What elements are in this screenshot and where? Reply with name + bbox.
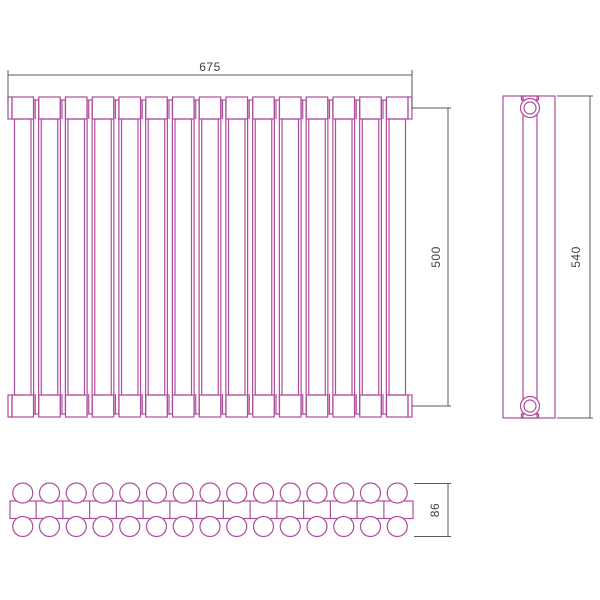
tube-body [309, 119, 326, 395]
section-head-bottom [226, 395, 248, 417]
section-head-top [306, 97, 328, 119]
tube-section-front-row [361, 483, 381, 503]
side-profile [503, 96, 555, 418]
tube-section-front-row [280, 483, 300, 503]
tube-section-back-row [120, 517, 140, 537]
tube-section-back-row [93, 517, 113, 537]
section-head-bottom [66, 395, 88, 417]
tube-section-back-row [254, 517, 274, 537]
collector-band [10, 501, 413, 519]
tube-section-back-row [147, 517, 167, 537]
section-head-top [66, 97, 88, 119]
tube-section-front-row [200, 483, 220, 503]
tube-section-back-row [200, 517, 220, 537]
tube-body [362, 119, 379, 395]
section-head-top [226, 97, 248, 119]
dimension-axis-height-label: 500 [429, 246, 443, 268]
drawing-svg: 675 500 540 86 [0, 0, 600, 600]
section-head-top [280, 97, 302, 119]
section-head-bottom [12, 395, 34, 417]
section-head-bottom [119, 395, 141, 417]
tube-section-front-row [120, 483, 140, 503]
tube-section-front-row [254, 483, 274, 503]
dimension-overall-height-label: 540 [569, 246, 583, 268]
section-head-bottom [360, 395, 382, 417]
section-head-top [12, 97, 34, 119]
section-head-bottom [280, 395, 302, 417]
technical-drawing: 675 500 540 86 [0, 0, 600, 600]
dimension-depth: 86 [414, 484, 451, 537]
tube-section-back-row [173, 517, 193, 537]
tube-body [255, 119, 272, 395]
tube-section-front-row [173, 483, 193, 503]
tube-body [148, 119, 165, 395]
back-tube [328, 100, 333, 414]
front-view [8, 97, 412, 417]
tube-body [202, 119, 219, 395]
connection-fitting [521, 397, 540, 416]
tube-section-back-row [66, 517, 86, 537]
section-head-top [333, 97, 355, 119]
top-view [10, 483, 413, 537]
section-head-bottom [92, 395, 114, 417]
collector-end-cap [408, 97, 412, 119]
back-tube [87, 100, 92, 414]
section-head-top [360, 97, 382, 119]
section-head-bottom [146, 395, 168, 417]
back-tube [301, 100, 306, 414]
back-tube [248, 100, 253, 414]
tube-section-back-row [13, 517, 33, 537]
section-head-top [119, 97, 141, 119]
tube-section-back-row [334, 517, 354, 537]
tube-body [389, 119, 406, 395]
back-tube [381, 100, 386, 414]
back-tube [167, 100, 172, 414]
tube-section-back-row [361, 517, 381, 537]
section-head-bottom [333, 395, 355, 417]
section-head-top [387, 97, 409, 119]
tube-section-back-row [40, 517, 60, 537]
tube-section-front-row [334, 483, 354, 503]
connection-fitting [521, 99, 540, 118]
tube-section-front-row [13, 483, 33, 503]
tube-section-back-row [307, 517, 327, 537]
back-tube [355, 100, 360, 414]
back-tube [34, 100, 39, 414]
tube-body [282, 119, 299, 395]
dimension-depth-label: 86 [428, 503, 442, 517]
tube-section-front-row [147, 483, 167, 503]
section-head-bottom [387, 395, 409, 417]
dimension-overall-height: 540 [557, 96, 593, 418]
back-tube [194, 100, 199, 414]
back-tube [60, 100, 65, 414]
section-head-bottom [173, 395, 195, 417]
back-tube [114, 100, 119, 414]
section-head-top [253, 97, 275, 119]
section-head-top [199, 97, 221, 119]
back-tube [274, 100, 279, 414]
tube-section-back-row [387, 517, 407, 537]
tube-section-front-row [307, 483, 327, 503]
tube-body [175, 119, 192, 395]
tube-section-back-row [280, 517, 300, 537]
section-head-top [173, 97, 195, 119]
section-head-top [146, 97, 168, 119]
tube-body [68, 119, 85, 395]
section-head-bottom [306, 395, 328, 417]
tube-section-back-row [227, 517, 247, 537]
tube-section-front-row [387, 483, 407, 503]
tube-body [336, 119, 353, 395]
back-tube [141, 100, 146, 414]
tube-body [41, 119, 58, 395]
tube-section-front-row [227, 483, 247, 503]
tube-body [95, 119, 112, 395]
section-head-bottom [253, 395, 275, 417]
section-head-bottom [39, 395, 61, 417]
section-head-top [39, 97, 61, 119]
dimension-width-label: 675 [199, 60, 221, 74]
tube-body [122, 119, 139, 395]
dimension-axis-height: 500 [412, 108, 451, 406]
section-head-top [92, 97, 114, 119]
tube-section-front-row [93, 483, 113, 503]
tube-body [229, 119, 246, 395]
back-tube [221, 100, 226, 414]
collector-end-cap [408, 395, 412, 417]
dimension-width: 675 [8, 60, 412, 110]
section-head-bottom [199, 395, 221, 417]
tube-section-front-row [66, 483, 86, 503]
side-view [503, 96, 555, 418]
tube-body [15, 119, 32, 395]
tube-section-front-row [40, 483, 60, 503]
